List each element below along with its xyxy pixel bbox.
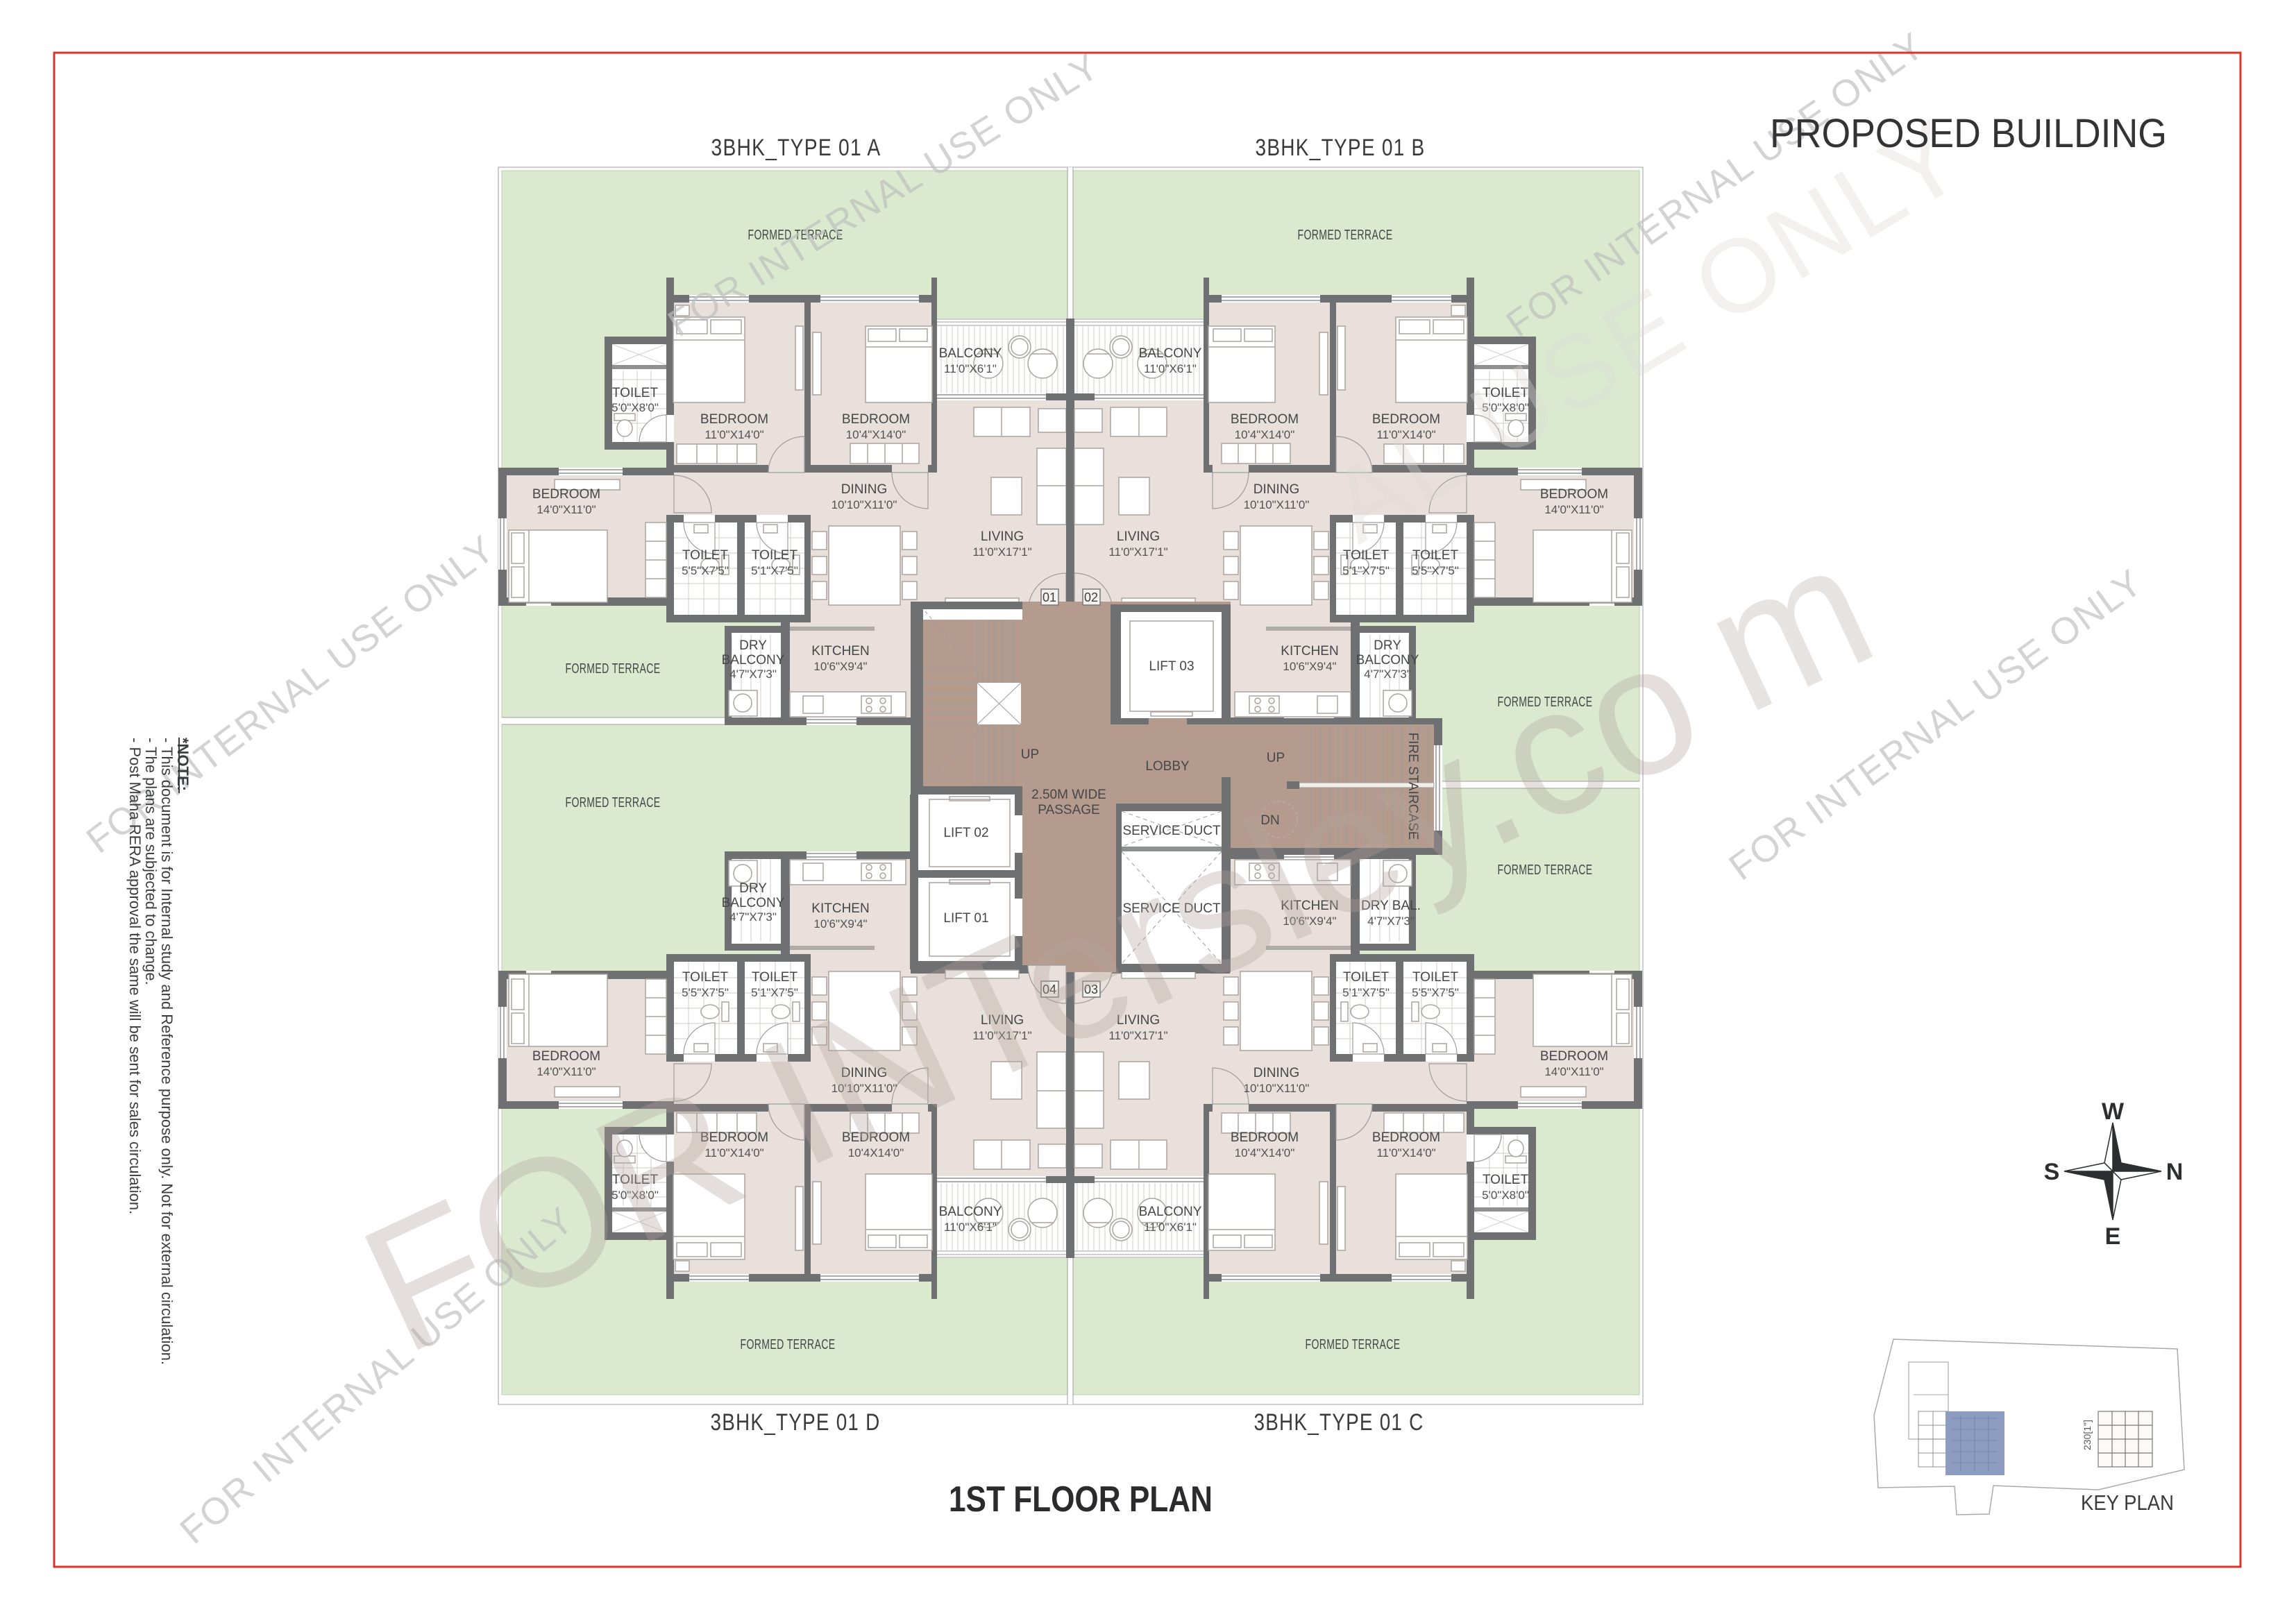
- svg-text:14'0"X11'0": 14'0"X11'0": [1544, 503, 1603, 516]
- svg-text:11'0"X6'1": 11'0"X6'1": [944, 1221, 997, 1234]
- svg-text:14'0"X11'0": 14'0"X11'0": [537, 1065, 596, 1078]
- svg-text:10'10"X11'0": 10'10"X11'0": [1244, 498, 1310, 511]
- svg-text:E: E: [2105, 1223, 2121, 1250]
- svg-text:TOILET: TOILET: [752, 548, 798, 563]
- svg-text:11'0"X17'1": 11'0"X17'1": [1108, 545, 1167, 559]
- svg-text:1ST FLOOR PLAN: 1ST FLOOR PLAN: [949, 1479, 1213, 1520]
- svg-text:10'6"X9'4": 10'6"X9'4": [813, 660, 867, 673]
- svg-text:11'0"X6'1": 11'0"X6'1": [1144, 362, 1197, 375]
- svg-text:BALCONY: BALCONY: [1139, 346, 1202, 361]
- svg-text:DINING: DINING: [1253, 1066, 1300, 1080]
- svg-text:TOILET: TOILET: [682, 548, 729, 563]
- svg-text:10'4"X14'0": 10'4"X14'0": [846, 428, 906, 441]
- svg-text:5'1"X7'5": 5'1"X7'5": [1342, 986, 1390, 999]
- svg-text:PROPOSED BUILDING: PROPOSED BUILDING: [1770, 111, 2167, 156]
- svg-text:4'7"X7'3": 4'7"X7'3": [729, 668, 777, 681]
- svg-text:4'7"X7'3": 4'7"X7'3": [1364, 668, 1411, 681]
- svg-text:01: 01: [1043, 590, 1056, 604]
- svg-text:BALCONY: BALCONY: [1139, 1205, 1202, 1219]
- svg-text:5'1"X7'5": 5'1"X7'5": [1342, 564, 1390, 577]
- svg-text:BEDROOM: BEDROOM: [1540, 1049, 1608, 1064]
- svg-text:11'0"X17'1": 11'0"X17'1": [972, 545, 1031, 559]
- svg-text:LIVING: LIVING: [981, 529, 1024, 544]
- svg-text:DRY: DRY: [739, 638, 767, 653]
- svg-text:KITCHEN: KITCHEN: [811, 644, 869, 658]
- svg-text:BALCONY: BALCONY: [722, 653, 785, 668]
- svg-text:*NOTE:: *NOTE:: [174, 738, 192, 791]
- svg-text:3BHK_TYPE 01 B: 3BHK_TYPE 01 B: [1256, 135, 1426, 161]
- svg-text:TOILET: TOILET: [612, 386, 659, 400]
- svg-text:PASSAGE: PASSAGE: [1038, 803, 1099, 817]
- svg-text:LIFT 03: LIFT 03: [1149, 659, 1194, 674]
- svg-text:5'5"X7'5": 5'5"X7'5": [1412, 564, 1459, 577]
- svg-text:DINING: DINING: [841, 482, 888, 497]
- svg-text:3BHK_TYPE 01 A: 3BHK_TYPE 01 A: [711, 135, 881, 161]
- svg-text:- This document is for Interna: - This document is for Internal study an…: [158, 738, 176, 1365]
- svg-text:DINING: DINING: [1253, 482, 1300, 497]
- svg-text:BALCONY: BALCONY: [939, 346, 1002, 361]
- svg-text:KITCHEN: KITCHEN: [811, 901, 869, 916]
- svg-text:LIVING: LIVING: [1117, 529, 1160, 544]
- svg-text:10'4"X14'0": 10'4"X14'0": [1235, 428, 1295, 441]
- svg-text:5'5"X7'5": 5'5"X7'5": [682, 986, 729, 999]
- svg-text:10'6"X9'4": 10'6"X9'4": [813, 917, 867, 931]
- svg-text:02: 02: [1084, 590, 1098, 604]
- svg-text:TOILET: TOILET: [1412, 548, 1459, 563]
- svg-text:- Post Maha RERA approval the: - Post Maha RERA approval the same will …: [126, 738, 144, 1214]
- svg-text:BEDROOM: BEDROOM: [700, 412, 768, 427]
- svg-text:TOILET: TOILET: [1483, 1173, 1529, 1187]
- svg-text:5'5"X7'5": 5'5"X7'5": [1412, 986, 1459, 999]
- svg-text:BALCONY: BALCONY: [1356, 653, 1419, 668]
- svg-text:3BHK_TYPE 01 D: 3BHK_TYPE 01 D: [711, 1409, 881, 1436]
- svg-text:LOBBY: LOBBY: [1145, 759, 1190, 774]
- svg-text:5'0"X8'0": 5'0"X8'0": [611, 401, 659, 414]
- svg-text:5'1"X7'5": 5'1"X7'5": [751, 564, 798, 577]
- svg-text:UP: UP: [1021, 747, 1039, 762]
- svg-text:BEDROOM: BEDROOM: [1231, 1130, 1299, 1145]
- svg-text:10'10"X11'0": 10'10"X11'0": [832, 498, 897, 511]
- svg-text:FORMED TERRACE: FORMED TERRACE: [741, 1337, 836, 1352]
- svg-text:TOILET: TOILET: [1343, 970, 1390, 985]
- svg-text:TOILET: TOILET: [1412, 970, 1459, 985]
- svg-text:S: S: [2044, 1159, 2060, 1185]
- svg-text:4'7"X7'3": 4'7"X7'3": [729, 910, 777, 924]
- svg-text:TOILET: TOILET: [682, 970, 729, 985]
- svg-text:230[1"]: 230[1"]: [2082, 1420, 2093, 1450]
- svg-text:DRY: DRY: [739, 881, 767, 896]
- svg-text:UP: UP: [1267, 751, 1285, 765]
- svg-text:BEDROOM: BEDROOM: [532, 487, 600, 502]
- svg-text:10'4"X14'0": 10'4"X14'0": [1235, 1146, 1295, 1159]
- svg-text:TOILET: TOILET: [752, 970, 798, 985]
- svg-text:3BHK_TYPE 01 C: 3BHK_TYPE 01 C: [1254, 1409, 1424, 1436]
- svg-text:BEDROOM: BEDROOM: [532, 1049, 600, 1064]
- svg-text:BALCONY: BALCONY: [722, 896, 785, 910]
- svg-text:BEDROOM: BEDROOM: [1231, 412, 1299, 427]
- svg-text:BALCONY: BALCONY: [939, 1205, 1002, 1219]
- svg-text:- The plans are subjected to c: - The plans are subjected to change.: [142, 738, 160, 985]
- svg-text:DRY: DRY: [1374, 638, 1401, 653]
- svg-text:FORMED TERRACE: FORMED TERRACE: [1298, 228, 1393, 243]
- svg-text:5'5"X7'5": 5'5"X7'5": [682, 564, 729, 577]
- svg-text:11'0"X14'0": 11'0"X14'0": [704, 428, 763, 441]
- svg-text:FORMED TERRACE: FORMED TERRACE: [1306, 1337, 1401, 1352]
- svg-text:11'0"X14'0": 11'0"X14'0": [1376, 1146, 1435, 1159]
- svg-text:FORMED TERRACE: FORMED TERRACE: [566, 661, 661, 677]
- svg-text:N: N: [2166, 1159, 2184, 1185]
- svg-text:FORMED TERRACE: FORMED TERRACE: [566, 795, 661, 810]
- svg-text:5'0"X8'0": 5'0"X8'0": [1482, 1189, 1529, 1202]
- svg-text:11'0"X6'1": 11'0"X6'1": [1144, 1221, 1197, 1234]
- svg-text:BEDROOM: BEDROOM: [1372, 1130, 1440, 1145]
- svg-text:14'0"X11'0": 14'0"X11'0": [537, 503, 596, 516]
- svg-text:W: W: [2102, 1098, 2125, 1125]
- svg-text:10'6"X9'4": 10'6"X9'4": [1283, 660, 1336, 673]
- svg-text:14'0"X11'0": 14'0"X11'0": [1544, 1065, 1603, 1078]
- svg-text:KEY PLAN: KEY PLAN: [2081, 1490, 2174, 1515]
- svg-text:BEDROOM: BEDROOM: [842, 412, 910, 427]
- svg-text:KITCHEN: KITCHEN: [1281, 644, 1338, 658]
- svg-text:2.50M WIDE: 2.50M WIDE: [1031, 788, 1106, 802]
- svg-text:10'10"X11'0": 10'10"X11'0": [1244, 1082, 1310, 1095]
- svg-text:LIFT 02: LIFT 02: [943, 826, 988, 840]
- svg-text:BEDROOM: BEDROOM: [1540, 487, 1608, 502]
- svg-text:11'0"X6'1": 11'0"X6'1": [944, 362, 997, 375]
